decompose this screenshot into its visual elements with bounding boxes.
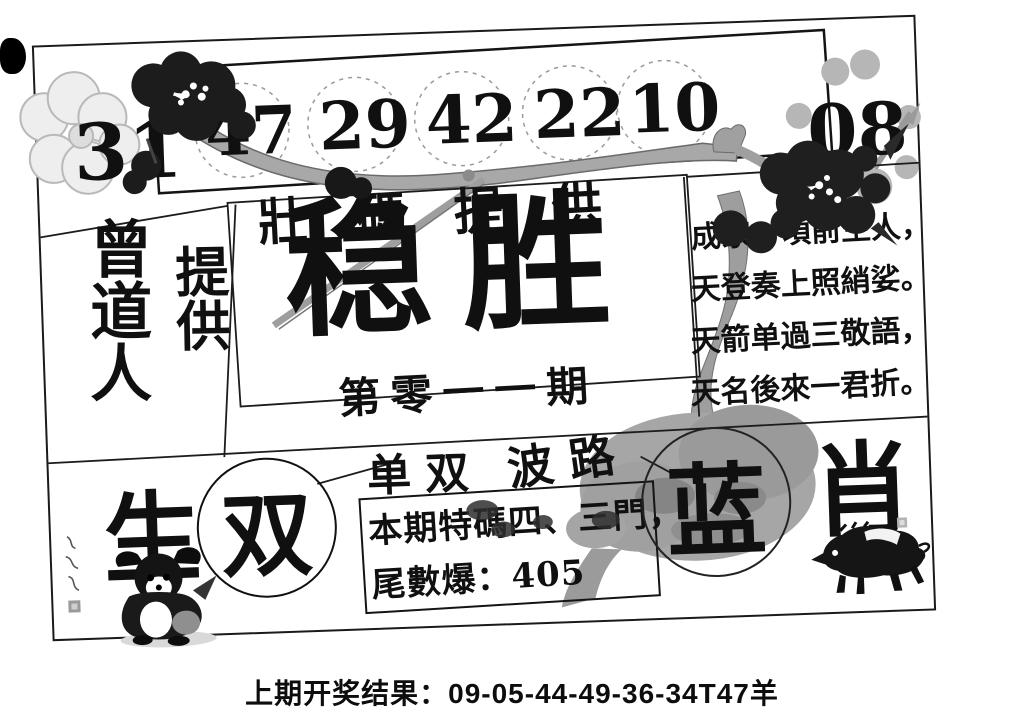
main-title: 稳胜 <box>239 183 684 346</box>
tip-sheet-panel: 31 47 29 42 22 10 08 壯碼提供 曾道人 提供 稳胜 第零一一… <box>32 15 936 641</box>
number-08: 08 <box>806 85 909 173</box>
special-box-line1: 本期特碼四、三門， <box>367 485 684 553</box>
zodiac-char-left: 生 <box>100 458 203 603</box>
footer-result: 上期开奖结果：09-05-44-49-36-34T47羊 <box>0 672 1024 712</box>
number-31: 31 <box>72 104 184 199</box>
special-number-box: 本期特碼四、三門， 尾數爆：405 <box>358 480 661 614</box>
parity-pick-char: 双 <box>219 460 316 596</box>
number-22: 22 <box>532 73 627 154</box>
number-29: 29 <box>318 84 413 165</box>
provider-provides: 提供 <box>158 243 240 414</box>
ink-blot <box>0 38 26 74</box>
number-47: 47 <box>204 90 299 171</box>
provider-name: 曾道人 <box>70 217 160 467</box>
zodiac-char-right: 肖 <box>809 407 916 557</box>
blue-pick-char: 蓝 <box>664 428 769 576</box>
number-10: 10 <box>627 68 722 149</box>
special-box-line2: 尾數爆：405 <box>370 545 587 607</box>
number-42: 42 <box>424 79 519 160</box>
